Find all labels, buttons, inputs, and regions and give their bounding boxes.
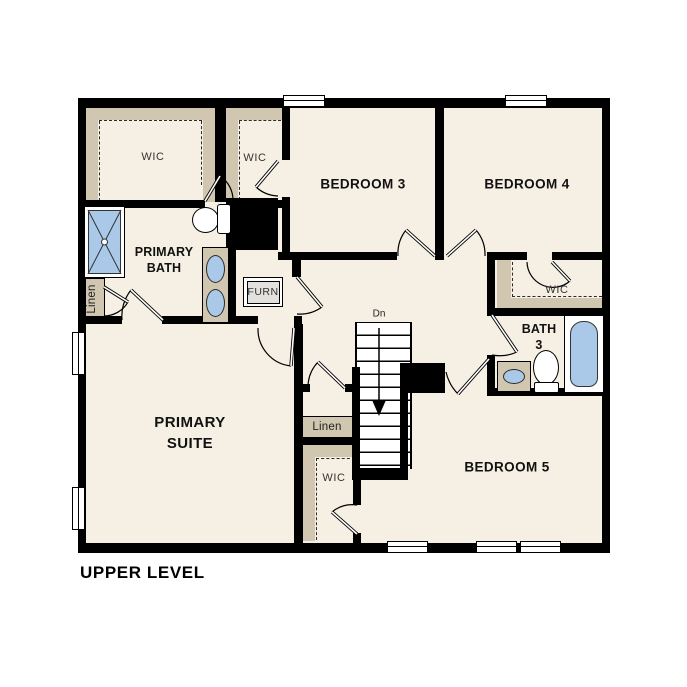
- room-label-primary-bath: PRIMARY BATH: [135, 244, 194, 276]
- chase: [408, 363, 445, 393]
- wall: [294, 316, 302, 324]
- room-label-bedroom3: BEDROOM 3: [320, 177, 405, 192]
- toilet-bowl: [533, 350, 559, 385]
- shelf-dash: [239, 120, 281, 121]
- shelf-dash: [316, 458, 317, 540]
- shelf-dash: [512, 296, 602, 297]
- room-label-bedroom5: BEDROOM 5: [464, 460, 549, 475]
- window: [387, 541, 428, 553]
- page-title: UPPER LEVEL: [80, 563, 205, 583]
- wall: [292, 260, 301, 277]
- wall: [294, 324, 303, 543]
- shelf-dash: [99, 120, 202, 121]
- wall: [352, 468, 408, 480]
- toilet-tank: [534, 382, 559, 393]
- vanity-sink: [503, 369, 525, 384]
- shower: [84, 206, 125, 278]
- bedroom5-wic-floor: [315, 457, 356, 541]
- floor-plan: FURN: [0, 0, 687, 687]
- wall: [435, 103, 444, 260]
- wall: [435, 252, 444, 260]
- room-label-bedroom4-wic: WIC: [545, 284, 568, 296]
- shelf-dash: [99, 121, 100, 201]
- window: [505, 95, 547, 107]
- room-label-primary-wic: WIC: [141, 151, 164, 163]
- room-label-bedroom4: BEDROOM 4: [484, 177, 569, 192]
- toilet-tank: [217, 204, 231, 234]
- toilet-bowl: [192, 207, 219, 233]
- room-label-bedroom5-wic: WIC: [322, 472, 345, 484]
- window: [72, 487, 85, 530]
- window: [520, 541, 561, 553]
- window: [283, 95, 325, 107]
- wall: [487, 252, 495, 315]
- furnace-label: FURN: [247, 286, 278, 298]
- wall: [278, 252, 397, 260]
- wall: [215, 103, 226, 202]
- room-label-bedroom3-wic: WIC: [243, 152, 266, 164]
- wall: [352, 367, 360, 468]
- furnace-label-box: FURN: [247, 281, 280, 304]
- vanity-sink: [206, 255, 225, 283]
- room-label-hall-linen: Linen: [312, 421, 341, 433]
- room-label-bath-linen: Linen: [86, 284, 98, 313]
- window: [476, 541, 517, 553]
- bathtub-basin: [570, 321, 598, 387]
- wall: [78, 316, 122, 324]
- wall: [400, 363, 408, 468]
- wall: [294, 437, 360, 445]
- room-label-bath3: BATH 3: [522, 321, 557, 353]
- wall: [552, 252, 610, 260]
- room-label-primary-suite: PRIMARY SUITE: [154, 412, 225, 454]
- shower-pan: [88, 210, 121, 274]
- wall: [78, 98, 86, 553]
- chase: [226, 198, 278, 250]
- stairs-dn-label: Dn: [373, 309, 386, 320]
- wall: [353, 533, 361, 543]
- vanity-sink: [206, 289, 225, 317]
- wall: [303, 384, 310, 392]
- wall: [353, 480, 361, 505]
- wall: [282, 197, 290, 258]
- window: [72, 332, 85, 375]
- wall: [228, 245, 236, 324]
- shelf-dash: [316, 458, 355, 459]
- shelf-dash: [512, 262, 513, 297]
- wall: [282, 103, 290, 160]
- shelf-dash: [201, 121, 202, 185]
- shelf-dash: [239, 121, 240, 200]
- furnace-unit: FURN: [243, 277, 283, 307]
